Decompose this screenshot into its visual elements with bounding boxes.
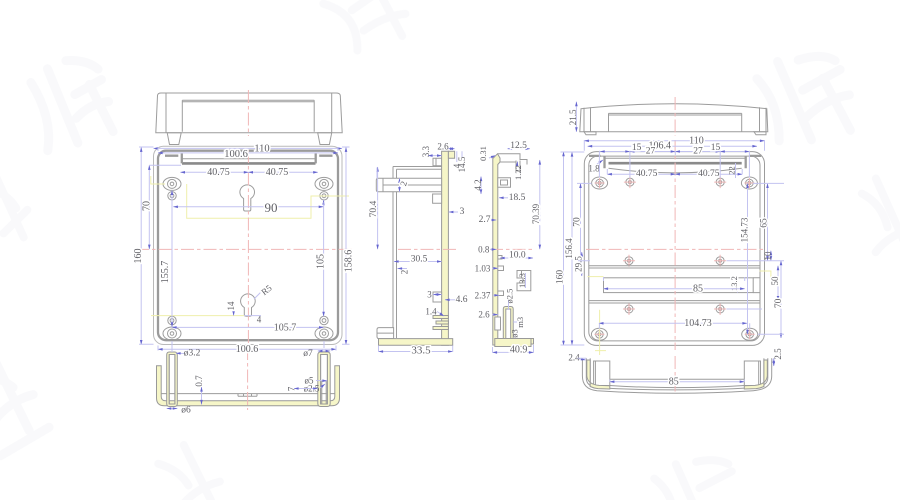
svg-text:3: 3 <box>460 207 465 217</box>
svg-text:R5: R5 <box>259 283 274 298</box>
svg-text:40.75: 40.75 <box>698 169 720 179</box>
svg-text:50: 50 <box>770 276 780 286</box>
svg-text:7: 7 <box>287 386 297 391</box>
svg-text:104.73: 104.73 <box>684 318 712 329</box>
svg-text:0.31: 0.31 <box>478 146 488 161</box>
svg-text:15: 15 <box>632 143 642 153</box>
svg-text:3.3: 3.3 <box>421 145 431 157</box>
svg-text:85: 85 <box>669 376 679 387</box>
svg-text:105: 105 <box>316 254 327 269</box>
svg-text:22: 22 <box>727 166 737 175</box>
svg-text:1.8: 1.8 <box>588 163 600 173</box>
svg-text:70.39: 70.39 <box>531 203 541 224</box>
svg-text:158.6: 158.6 <box>344 250 355 273</box>
svg-text:65: 65 <box>759 218 769 228</box>
svg-text:90: 90 <box>265 200 278 215</box>
svg-text:4.6: 4.6 <box>456 295 468 305</box>
svg-text:14.5: 14.5 <box>457 156 467 172</box>
svg-text:70.4: 70.4 <box>369 200 379 217</box>
svg-text:2.7: 2.7 <box>479 215 491 225</box>
svg-text:10: 10 <box>763 251 773 261</box>
svg-text:2.37: 2.37 <box>475 290 491 300</box>
svg-text:13.3: 13.3 <box>517 273 527 288</box>
svg-text:100.6: 100.6 <box>224 149 248 160</box>
svg-text:40.75: 40.75 <box>266 167 289 178</box>
svg-text:ø6: ø6 <box>181 406 191 416</box>
svg-text:27: 27 <box>646 147 656 157</box>
svg-text:ø7: ø7 <box>303 349 313 359</box>
svg-text:2: 2 <box>400 270 410 275</box>
svg-text:40.9: 40.9 <box>510 345 528 356</box>
svg-text:2.6: 2.6 <box>478 310 490 320</box>
svg-text:15: 15 <box>711 143 721 153</box>
svg-text:105.7: 105.7 <box>274 323 297 334</box>
svg-text:85: 85 <box>693 283 703 294</box>
svg-text:160: 160 <box>133 249 144 264</box>
svg-text:29.5: 29.5 <box>574 256 584 272</box>
svg-text:2.4: 2.4 <box>568 353 580 363</box>
svg-text:100.6: 100.6 <box>236 344 259 355</box>
svg-text:4.2: 4.2 <box>473 179 483 190</box>
svg-text:1.4: 1.4 <box>425 307 437 317</box>
svg-text:ø2.5: ø2.5 <box>505 289 515 304</box>
svg-text:m3: m3 <box>515 317 525 328</box>
svg-text:30.5: 30.5 <box>411 255 428 265</box>
svg-text:154.73: 154.73 <box>739 217 749 242</box>
svg-text:10.0: 10.0 <box>509 251 526 261</box>
svg-text:160: 160 <box>556 270 566 285</box>
svg-text:155.7: 155.7 <box>160 261 171 284</box>
svg-text:27: 27 <box>693 147 703 157</box>
svg-text:3: 3 <box>427 290 432 300</box>
svg-text:21.5: 21.5 <box>568 109 578 125</box>
svg-text:ø3: ø3 <box>510 329 520 338</box>
svg-text:2.6: 2.6 <box>437 142 449 152</box>
svg-text:2.5: 2.5 <box>773 348 783 360</box>
svg-text:156.4: 156.4 <box>564 238 574 259</box>
svg-text:1.03: 1.03 <box>475 263 491 273</box>
svg-text:33.5: 33.5 <box>411 345 431 357</box>
svg-text:70: 70 <box>774 298 784 308</box>
svg-text:18.5: 18.5 <box>509 193 526 203</box>
svg-text:110: 110 <box>689 135 704 146</box>
svg-text:12.5: 12.5 <box>510 141 527 151</box>
svg-text:40.75: 40.75 <box>207 167 230 178</box>
svg-text:4: 4 <box>257 315 262 325</box>
svg-text:0.8: 0.8 <box>478 244 490 254</box>
svg-text:14: 14 <box>226 301 236 311</box>
svg-text:ø3.2: ø3.2 <box>184 349 201 359</box>
svg-text:70: 70 <box>142 201 153 211</box>
svg-text:40.75: 40.75 <box>636 169 658 179</box>
svg-text:1.22: 1.22 <box>513 165 523 180</box>
svg-text:0.7: 0.7 <box>194 375 204 387</box>
svg-text:70: 70 <box>572 217 582 227</box>
